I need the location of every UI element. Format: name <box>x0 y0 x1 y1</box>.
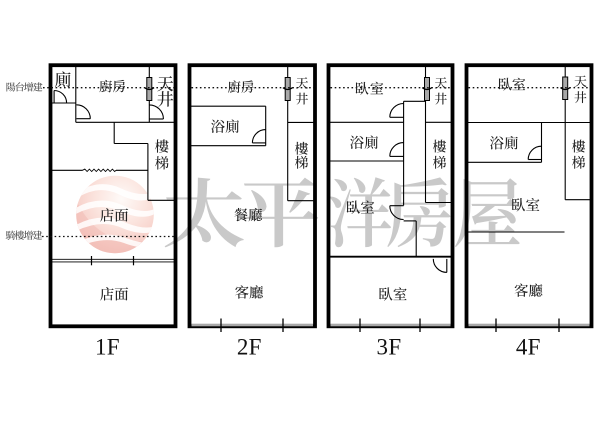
svg-text:1F: 1F <box>95 335 120 360</box>
svg-text:3F: 3F <box>377 335 402 360</box>
svg-text:4F: 4F <box>516 335 541 360</box>
svg-text:2F: 2F <box>237 335 262 360</box>
